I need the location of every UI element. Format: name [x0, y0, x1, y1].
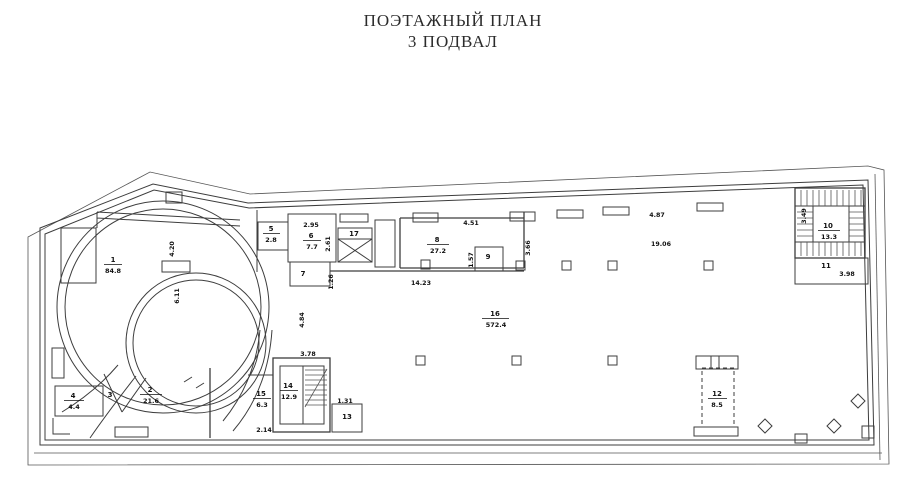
room-label-5: 5 2.8 [263, 225, 280, 244]
svg-text:11: 11 [821, 262, 831, 270]
svg-text:17: 17 [349, 230, 359, 238]
room-11 [795, 258, 868, 284]
room-label-11: 11 [821, 262, 831, 270]
room-label-12: 12 8.5 [708, 390, 727, 409]
dim-room13-top: 1.31 [337, 398, 353, 405]
column [608, 356, 617, 365]
dim-room8-bottom: 14.23 [411, 280, 431, 287]
column-diamond [758, 419, 772, 433]
svg-text:2: 2 [148, 386, 153, 394]
svg-text:4.4: 4.4 [68, 403, 80, 411]
room-8-9 [400, 212, 524, 271]
svg-text:9: 9 [486, 253, 491, 261]
room-label-15: 15 6.3 [253, 390, 271, 409]
door-ticks [184, 377, 204, 388]
dim-room9-left: 1.57 [468, 252, 475, 268]
room-label-13: 13 [342, 413, 352, 421]
wall-column [795, 434, 807, 443]
column [704, 261, 713, 270]
dim-room7-depth: 1.26 [328, 274, 335, 290]
dim-hall-top-left: 3.66 [525, 240, 532, 256]
dim-room11-bottom: 3.98 [839, 271, 855, 278]
svg-text:15: 15 [256, 390, 266, 398]
floor-plan-page: ПОЭТАЖНЫЙ ПЛАН 3 ПОДВАЛ [0, 0, 906, 487]
shaft-small [375, 220, 395, 267]
ramp-outer-circle [57, 201, 269, 413]
svg-text:3: 3 [108, 391, 113, 399]
svg-text:8: 8 [435, 236, 440, 244]
dim-ramp-inner: 6.11 [174, 288, 181, 304]
dim-ramp-upper: 4.20 [169, 241, 176, 257]
svg-text:12: 12 [712, 390, 722, 398]
room-label-8: 8 27.2 [427, 236, 449, 255]
dim-room6-width: 2.95 [303, 222, 319, 229]
rooms-top-cluster [257, 210, 524, 286]
shaft-17-cross-icon [338, 239, 372, 262]
room-label-14: 14 12.9 [280, 382, 298, 401]
ramp-landing-inner [162, 261, 190, 272]
floor-plan-svg: 1 84.8 2 21.6 3 4 4.4 5 2.8 6 7.7 7 [0, 0, 906, 487]
room-label-4: 4 4.4 [64, 392, 84, 411]
wall-column [862, 426, 874, 438]
svg-text:7.7: 7.7 [306, 243, 318, 251]
site-contour [28, 166, 889, 465]
column [562, 261, 571, 270]
window-niches [340, 203, 723, 222]
svg-text:12.9: 12.9 [281, 393, 298, 401]
room-label-7: 7 [301, 270, 306, 278]
svg-text:6.3: 6.3 [256, 401, 268, 409]
column [512, 356, 521, 365]
dim-stair10-side: 3.49 [801, 208, 808, 224]
columns [416, 261, 874, 443]
ramp-transition-arcs [62, 330, 272, 438]
svg-text:6: 6 [309, 232, 314, 240]
dim-hall-mid: 19.06 [651, 241, 672, 248]
column [608, 261, 617, 270]
column-diamond [827, 419, 841, 433]
svg-text:2.8: 2.8 [265, 236, 277, 244]
svg-text:8.5: 8.5 [711, 401, 723, 409]
svg-text:27.2: 27.2 [430, 247, 446, 255]
svg-text:13.3: 13.3 [821, 233, 837, 241]
dim-room8-top: 4.51 [463, 220, 479, 227]
room-label-1: 1 84.8 [104, 256, 122, 275]
room-7 [290, 262, 330, 286]
svg-text:16: 16 [490, 310, 500, 318]
dim-stair14-top: 3.78 [300, 351, 316, 358]
svg-text:572.4: 572.4 [486, 321, 507, 329]
dim-room6-depth: 2.61 [325, 236, 332, 252]
svg-text:14: 14 [283, 382, 293, 390]
room-label-16: 16 572.4 [482, 310, 509, 329]
room-label-17: 17 [349, 230, 359, 238]
ramp-circles [57, 192, 272, 438]
column [416, 356, 425, 365]
svg-text:21.6: 21.6 [143, 397, 160, 405]
column-diamond [851, 394, 865, 408]
svg-text:7: 7 [301, 270, 306, 278]
dim-hall-top-right: 4.87 [649, 212, 665, 219]
room-label-10: 10 13.3 [818, 222, 840, 241]
svg-text:5: 5 [269, 225, 274, 233]
dim-room15-bottom: 2.14 [256, 427, 272, 434]
svg-text:13: 13 [342, 413, 352, 421]
svg-text:1: 1 [111, 256, 116, 264]
dim-corridor-left: 4.84 [299, 312, 306, 328]
room-label-9: 9 [486, 253, 491, 261]
svg-text:10: 10 [823, 222, 833, 230]
room-label-3: 3 [108, 391, 113, 399]
svg-text:84.8: 84.8 [105, 267, 122, 275]
room-label-6: 6 7.7 [303, 232, 321, 251]
svg-text:4: 4 [71, 392, 76, 400]
